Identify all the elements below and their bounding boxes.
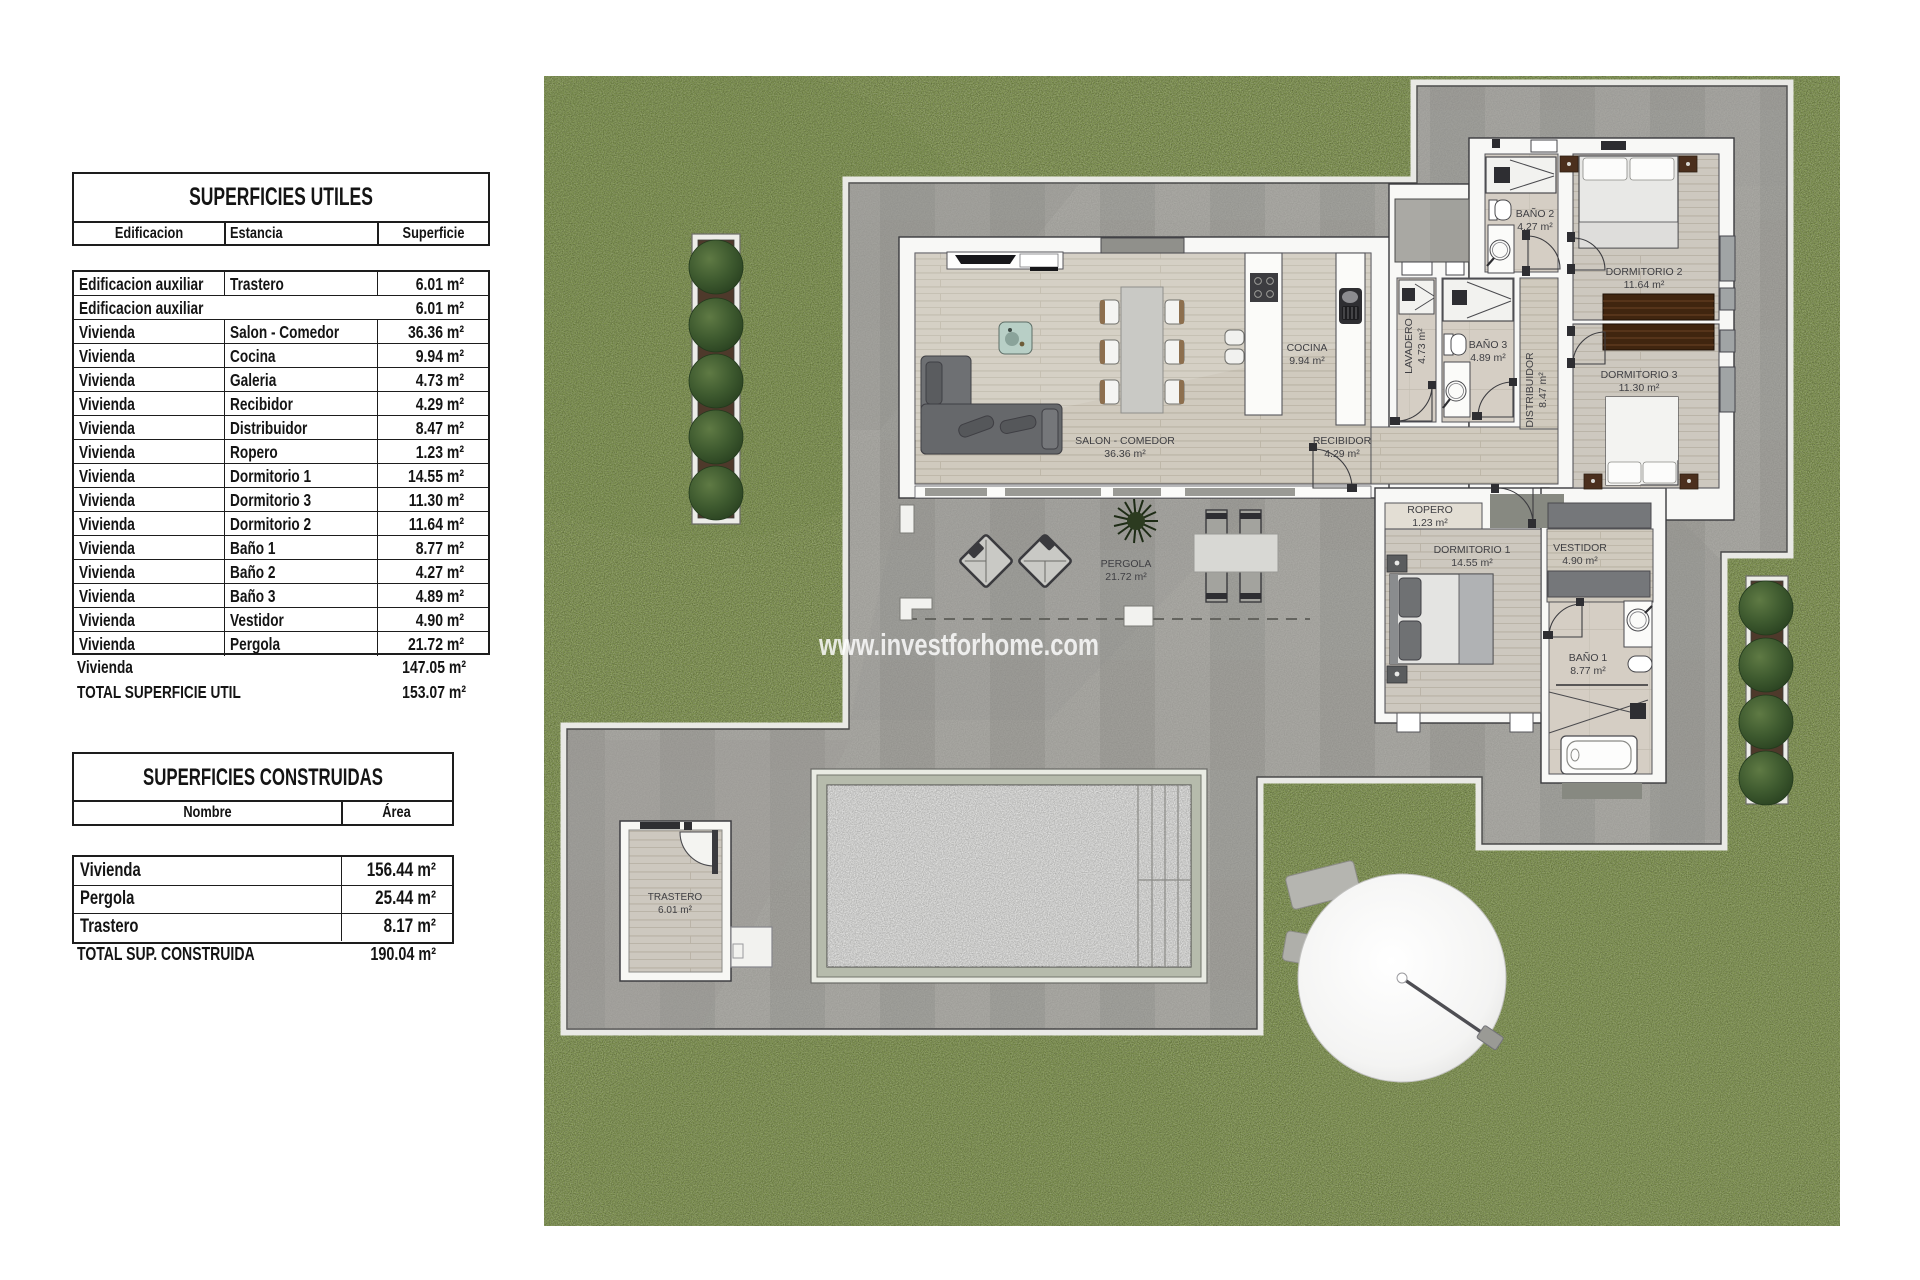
- svg-text:COCINA: COCINA: [1287, 342, 1328, 354]
- svg-text:SALON - COMEDOR: SALON - COMEDOR: [1075, 435, 1175, 447]
- svg-text:4.27 m²: 4.27 m²: [1517, 221, 1553, 233]
- svg-text:11.30 m²: 11.30 m²: [1619, 382, 1660, 394]
- svg-text:4.89 m²: 4.89 m²: [1470, 352, 1506, 364]
- svg-text:8.47 m²: 8.47 m²: [1537, 372, 1549, 408]
- svg-text:4.73 m²: 4.73 m²: [1416, 328, 1428, 364]
- svg-text:DORMITORIO 3: DORMITORIO 3: [1601, 369, 1678, 381]
- svg-text:RECIBIDOR: RECIBIDOR: [1313, 435, 1372, 447]
- svg-text:6.01 m²: 6.01 m²: [658, 905, 693, 916]
- svg-text:9.94 m²: 9.94 m²: [1289, 355, 1325, 367]
- svg-text:1.23 m²: 1.23 m²: [1412, 517, 1448, 529]
- svg-text:11.64 m²: 11.64 m²: [1624, 279, 1665, 291]
- svg-text:www.investforhome.com: www.investforhome.com: [818, 627, 1099, 662]
- svg-text:BAÑO 2: BAÑO 2: [1516, 207, 1555, 220]
- svg-text:DORMITORIO 1: DORMITORIO 1: [1434, 544, 1511, 556]
- svg-text:DORMITORIO 2: DORMITORIO 2: [1606, 266, 1683, 278]
- svg-text:BAÑO 3: BAÑO 3: [1469, 338, 1508, 351]
- svg-text:36.36 m²: 36.36 m²: [1104, 448, 1146, 460]
- svg-text:BAÑO 1: BAÑO 1: [1569, 651, 1608, 664]
- svg-text:4.90 m²: 4.90 m²: [1562, 555, 1598, 567]
- svg-text:PERGOLA: PERGOLA: [1101, 558, 1152, 570]
- svg-text:LAVADERO: LAVADERO: [1403, 318, 1415, 374]
- svg-text:TRASTERO: TRASTERO: [648, 892, 703, 903]
- svg-text:8.77 m²: 8.77 m²: [1570, 665, 1606, 677]
- svg-text:4.29 m²: 4.29 m²: [1324, 448, 1360, 460]
- svg-text:21.72 m²: 21.72 m²: [1105, 571, 1147, 583]
- svg-text:VESTIDOR: VESTIDOR: [1553, 542, 1607, 554]
- svg-text:ROPERO: ROPERO: [1407, 504, 1453, 516]
- svg-text:DISTRIBUIDOR: DISTRIBUIDOR: [1524, 352, 1536, 428]
- svg-text:14.55 m²: 14.55 m²: [1451, 557, 1493, 569]
